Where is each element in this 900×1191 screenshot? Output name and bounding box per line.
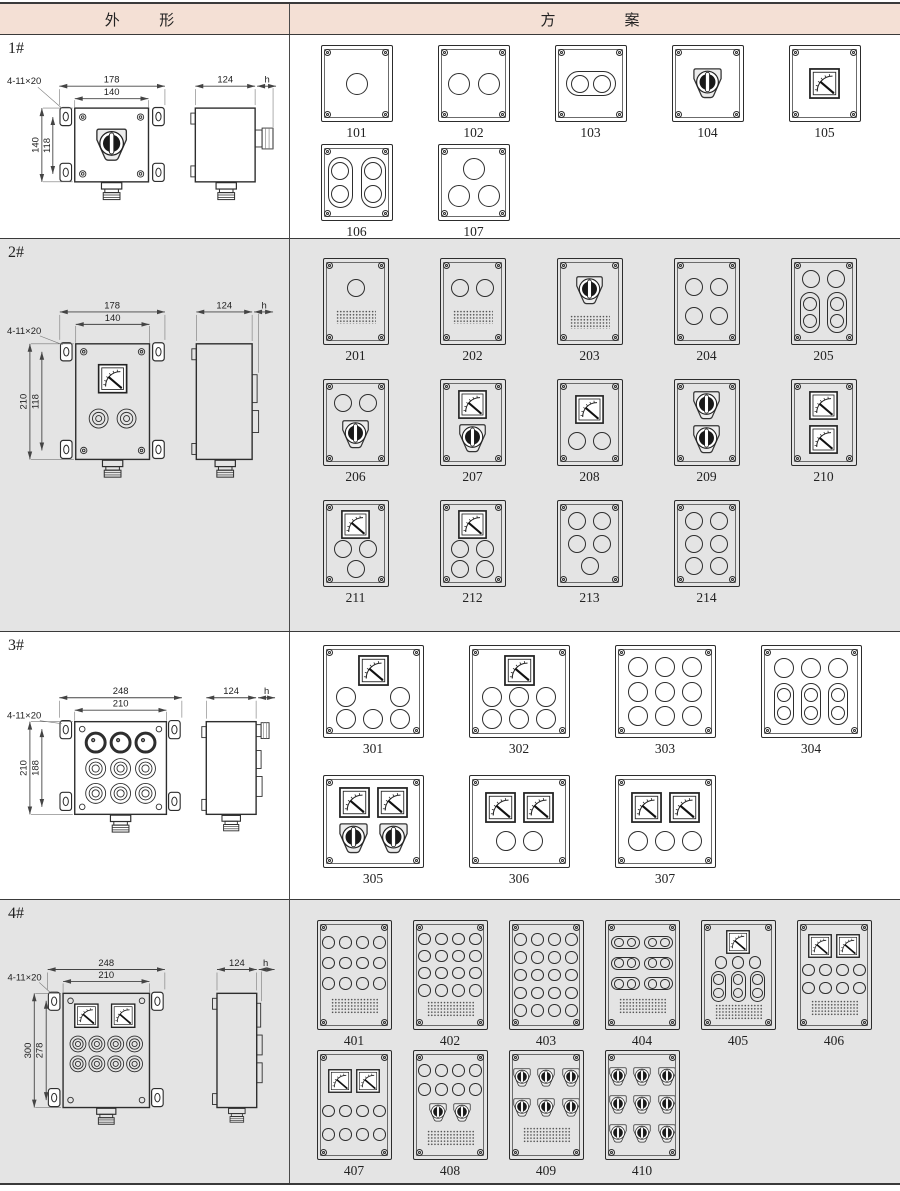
scheme-number: 402 [440, 1033, 460, 1049]
scheme: 205 [765, 258, 882, 364]
button-hole [581, 557, 599, 575]
button-hole [802, 270, 820, 288]
button-hole [682, 657, 702, 677]
corner-screw [618, 857, 625, 864]
corner-screw [324, 111, 331, 118]
front-view [60, 343, 164, 477]
outline-cell-4: 4# [0, 900, 290, 1183]
scheme-panel [615, 775, 716, 868]
corner-screw [729, 262, 736, 269]
table-row-3: 3# [0, 632, 900, 900]
button-hole [478, 185, 500, 207]
button-hole [713, 974, 724, 985]
button-hole [322, 1105, 335, 1118]
button-hole [710, 307, 728, 325]
button-hole [373, 1105, 386, 1118]
button-hole [660, 958, 670, 968]
nameplate-area [336, 310, 376, 324]
panel-row [458, 510, 487, 539]
scheme-number: 305 [363, 871, 383, 887]
panel-row [336, 687, 410, 707]
scheme: 202 [414, 258, 531, 364]
corner-screw [495, 576, 502, 583]
panel-row [802, 964, 866, 977]
button-hole [685, 535, 703, 553]
button-hole [593, 75, 611, 93]
scheme: 214 [648, 500, 765, 606]
panel-row [336, 709, 410, 729]
button-hole [802, 964, 815, 977]
corner-screw [794, 262, 801, 269]
button-hole [482, 709, 502, 729]
corner-screw [559, 857, 566, 864]
corner-screw [800, 924, 807, 931]
meter-icon [458, 390, 487, 419]
double-button-slot-horizontal [566, 71, 616, 96]
scheme-panel [317, 1050, 392, 1160]
front-view [60, 721, 180, 833]
meter-icon [808, 934, 832, 958]
corner-screw [560, 504, 567, 511]
corner-screw [846, 262, 853, 269]
button-hole [514, 951, 527, 964]
corner-screw [851, 727, 858, 734]
scheme-panel [323, 500, 389, 587]
buttons [89, 409, 136, 428]
panel-row [726, 930, 750, 954]
nameplate-area [570, 315, 610, 329]
corner-screw [794, 455, 801, 462]
button-hole [531, 933, 544, 946]
corner-screw [669, 924, 676, 931]
button-hole [685, 512, 703, 530]
button-hole [514, 987, 527, 1000]
rotary-switch-icon [97, 129, 126, 160]
meter-icon [631, 792, 662, 823]
scheme: 304 [738, 645, 884, 757]
corner-screw [378, 383, 385, 390]
corner-screw [413, 649, 420, 656]
svg-text:210: 210 [113, 699, 129, 710]
corner-screw [669, 1149, 676, 1156]
scheme-panel [440, 258, 506, 345]
button-hole [523, 831, 543, 851]
schemes-row-2: 2012022032042052062072082092102112122132… [290, 239, 900, 631]
button-hole [628, 682, 648, 702]
panel-row [322, 936, 386, 949]
button-hole [451, 279, 469, 297]
scheme-number: 403 [536, 1033, 556, 1049]
button-hole [469, 933, 482, 946]
side-view [192, 344, 259, 477]
rotary-switch-icon [632, 1094, 652, 1115]
corner-screw [675, 111, 682, 118]
panel-row [485, 792, 554, 823]
panel-row [346, 73, 368, 95]
button-hole [733, 988, 744, 999]
button-hole [356, 936, 369, 949]
corner-screw [669, 1019, 676, 1026]
button-hole [452, 984, 465, 997]
panel-row [628, 706, 702, 726]
svg-text:178: 178 [104, 75, 120, 86]
button-hole [685, 278, 703, 296]
corner-screw [472, 779, 479, 786]
svg-text:124: 124 [216, 300, 232, 311]
meter-icon [485, 792, 516, 823]
scheme-number: 101 [346, 125, 366, 141]
panel-row [809, 68, 840, 99]
button-hole [452, 933, 465, 946]
button-hole [660, 938, 670, 948]
button-hole [531, 951, 544, 964]
scheme: 207 [414, 379, 531, 485]
button-hole [418, 933, 431, 946]
button-hole [390, 687, 410, 707]
scheme: 204 [648, 258, 765, 364]
rotary-switch-icon [632, 1123, 652, 1144]
button-hole [339, 957, 352, 970]
scheme-panel [438, 45, 510, 122]
scheme: 208 [531, 379, 648, 485]
corner-screw [705, 727, 712, 734]
rotary-switch-icon [377, 821, 410, 856]
corner-screw [794, 383, 801, 390]
scheme: 406 [786, 920, 882, 1049]
corner-screw [559, 649, 566, 656]
corner-screw [846, 383, 853, 390]
button-hole [418, 967, 431, 980]
button-hole [331, 185, 349, 203]
corner-screw [378, 576, 385, 583]
button-hole [514, 1004, 527, 1017]
panel-row [568, 535, 611, 553]
button-hole [827, 270, 845, 288]
button-hole [356, 1128, 369, 1141]
corner-screw [705, 779, 712, 786]
corner-screw [413, 727, 420, 734]
corner-screw [800, 1019, 807, 1026]
corner-screw [413, 779, 420, 786]
scheme-panel [413, 1050, 488, 1160]
button-hole [536, 709, 556, 729]
corner-screw [512, 1054, 519, 1061]
button-hole [469, 1083, 482, 1096]
corner-screw [477, 1149, 484, 1156]
button-hole [853, 964, 866, 977]
button-hole [548, 969, 561, 982]
corner-screw [499, 111, 506, 118]
button-hole [452, 1064, 465, 1077]
svg-text:210: 210 [18, 394, 29, 410]
panel-row [685, 557, 728, 575]
button-hole [648, 938, 658, 948]
scheme-panel [701, 920, 776, 1030]
double-button-slot-vertical [361, 157, 386, 208]
panel-row [347, 279, 365, 297]
button-hole [710, 512, 728, 530]
scheme-number: 407 [344, 1163, 364, 1179]
nameplate-area [427, 1001, 474, 1017]
button-hole [347, 560, 365, 578]
svg-text:118: 118 [30, 394, 41, 409]
button-hole [568, 535, 586, 553]
corner-screw [573, 924, 580, 931]
scheme-panel [674, 258, 740, 345]
scheme-number: 209 [696, 469, 716, 485]
schemes-row-4: 401402403404405406407408409410 [290, 900, 900, 1183]
corner-screw [326, 857, 333, 864]
dimensions-side: 124 h [206, 686, 275, 718]
scheme-panel [605, 920, 680, 1030]
rotary-switch-icon [536, 1097, 556, 1118]
corner-screw [477, 1054, 484, 1061]
button-hole [715, 956, 728, 969]
button-hole [752, 988, 763, 999]
scheme-panel [323, 645, 424, 738]
scheme-number: 211 [346, 590, 366, 606]
svg-text:118: 118 [42, 138, 53, 153]
double-button-slot-vertical [827, 292, 847, 333]
panel-row [628, 657, 702, 677]
corner-screw [560, 455, 567, 462]
corner-screw [608, 924, 615, 931]
scheme: 402 [402, 920, 498, 1049]
panel-row [608, 1123, 677, 1144]
button-hole [509, 687, 529, 707]
button-hole [334, 540, 352, 558]
button-hole [482, 687, 502, 707]
scheme-number: 103 [580, 125, 600, 141]
scheme: 104 [649, 45, 766, 141]
corner-screw [704, 1019, 711, 1026]
corner-screw [612, 455, 619, 462]
buttons [86, 733, 156, 803]
table-header: 外 形 方 案 [0, 2, 900, 35]
panel-row [581, 557, 599, 575]
panel-row [458, 390, 487, 419]
corner-screw [558, 49, 565, 56]
panel-row [453, 310, 493, 324]
panel-row [336, 310, 376, 324]
button-hole [655, 831, 675, 851]
scheme: 306 [446, 775, 592, 887]
header-scheme-cell: 方 案 [290, 4, 900, 34]
panel-row [418, 1083, 482, 1096]
technical-drawing-3: 248 210 210 188 4-11×20 [0, 632, 289, 905]
corner-screw [495, 334, 502, 341]
panel-row [358, 655, 389, 686]
button-hole [628, 706, 648, 726]
corner-screw [381, 1149, 388, 1156]
panel-row [514, 987, 578, 1000]
rotary-switch-icon [536, 1067, 556, 1088]
panel-row [631, 792, 700, 823]
meter-icon [358, 655, 389, 686]
scheme-number: 303 [655, 741, 675, 757]
button-hole [710, 535, 728, 553]
panel-row [451, 560, 494, 578]
scheme: 302 [446, 645, 592, 757]
scheme-number: 401 [344, 1033, 364, 1049]
button-hole [336, 709, 356, 729]
button-hole [548, 987, 561, 1000]
button-hole [373, 977, 386, 990]
meter-icon [809, 391, 838, 420]
corner-screw [608, 1149, 615, 1156]
scheme-number: 214 [696, 590, 716, 606]
svg-text:210: 210 [98, 969, 114, 980]
corner-screw [677, 455, 684, 462]
panel-row [514, 951, 578, 964]
panel-row [512, 1067, 581, 1088]
corner-screw [443, 383, 450, 390]
panel-row [715, 1004, 762, 1020]
corner-screw [729, 383, 736, 390]
panel-row [504, 655, 535, 686]
panel-row [339, 787, 408, 818]
cable-gland-icon [101, 183, 121, 200]
scheme: 408 [402, 1050, 498, 1179]
corner-screw [378, 455, 385, 462]
svg-text:h: h [261, 300, 266, 311]
dimensions-front: 248 210 300 278 4-11×20 [7, 957, 164, 1108]
meter-icon [836, 934, 860, 958]
panel-row [512, 1097, 581, 1118]
button-hole [514, 933, 527, 946]
panel-row [808, 934, 861, 958]
corner-screw [416, 924, 423, 931]
double-button-slot-horizontal [611, 977, 640, 990]
button-hole [469, 1064, 482, 1077]
corner-screw [733, 49, 740, 56]
button-hole [435, 1064, 448, 1077]
corner-screw [324, 148, 331, 155]
panel-row [337, 821, 410, 856]
button-hole [476, 279, 494, 297]
button-hole [713, 988, 724, 999]
scheme-panel [791, 379, 857, 466]
button-hole [836, 982, 849, 995]
header-scheme-label: 方 案 [540, 9, 649, 30]
corner-screw [618, 649, 625, 656]
button-hole [331, 162, 349, 180]
button-hole [452, 967, 465, 980]
rotary-switch-icon [608, 1094, 628, 1115]
button-hole [536, 687, 556, 707]
scheme-number: 104 [697, 125, 717, 141]
technical-drawing-4: 248 210 300 278 4-11×20 [0, 900, 289, 1183]
scheme-panel [440, 500, 506, 587]
button-hole [531, 969, 544, 982]
rotary-switch-icon [512, 1097, 532, 1118]
meter-icon [112, 1004, 135, 1027]
button-hole [531, 987, 544, 1000]
scheme-panel [323, 379, 389, 466]
scheme-panel [413, 920, 488, 1030]
table-row-1: 1# 17 [0, 35, 900, 239]
scheme-number: 206 [345, 469, 365, 485]
scheme-number: 301 [363, 741, 383, 757]
double-button-slot-horizontal [611, 936, 640, 949]
corner-screw [560, 383, 567, 390]
dimensions-front: 178 140 210 118 4-11×20 [7, 300, 165, 459]
scheme: 106 [298, 144, 415, 240]
panel-row [322, 977, 386, 990]
panel-row [608, 1094, 677, 1115]
dimensions-front: 178 140 140 118 4-11×20 [7, 75, 165, 182]
double-button-slot-vertical [750, 971, 765, 1002]
panel-row [463, 158, 485, 180]
double-button-slot-vertical [801, 683, 821, 725]
panel-row [322, 957, 386, 970]
corner-screw [851, 649, 858, 656]
corner-screw [608, 1054, 615, 1061]
scheme-number: 302 [509, 741, 529, 757]
panel-row [341, 510, 370, 539]
corner-screw [382, 210, 389, 217]
panel-row [418, 1064, 482, 1077]
svg-text:h: h [263, 957, 268, 968]
scheme-number: 106 [346, 224, 366, 240]
button-hole [476, 560, 494, 578]
scheme-panel [789, 45, 861, 122]
button-hole [682, 682, 702, 702]
technical-drawing-1: 178 140 140 118 4-11×20 [0, 35, 289, 243]
button-hole [685, 557, 703, 575]
button-hole [548, 933, 561, 946]
scheme: 206 [297, 379, 414, 485]
corner-screw [618, 727, 625, 734]
button-hole [828, 658, 848, 678]
header-outline-cell: 外 形 [0, 4, 290, 34]
button-hole [831, 706, 845, 720]
scheme-number: 202 [462, 348, 482, 364]
corner-screw [612, 576, 619, 583]
panel-row [566, 71, 616, 96]
corner-screw [378, 262, 385, 269]
scheme-number: 102 [463, 125, 483, 141]
svg-text:h: h [264, 75, 269, 86]
spacer [363, 687, 383, 707]
rotary-switch-icon [691, 389, 722, 422]
cable-gland-icon [110, 815, 130, 832]
rotary-switch-icon [574, 274, 605, 307]
corner-screw [733, 111, 740, 118]
scheme: 409 [498, 1050, 594, 1179]
corner-screw [765, 924, 772, 931]
rotary-switch-icon [657, 1123, 677, 1144]
button-hole [593, 432, 611, 450]
panel-row [457, 422, 488, 455]
corner-screw [477, 924, 484, 931]
svg-text:4-11×20: 4-11×20 [7, 76, 41, 87]
scheme-panel [674, 379, 740, 466]
scheme-panel [438, 144, 510, 221]
scheme: 211 [297, 500, 414, 606]
panel-row [418, 984, 482, 997]
button-hole [478, 73, 500, 95]
corner-screw [378, 504, 385, 511]
scheme-number: 205 [813, 348, 833, 364]
button-hole [733, 974, 744, 985]
button-hole [655, 682, 675, 702]
rotary-switch-icon [657, 1066, 677, 1087]
button-hole [571, 75, 589, 93]
corner-screw [559, 727, 566, 734]
button-hole [749, 956, 762, 969]
meter-icon [523, 792, 554, 823]
